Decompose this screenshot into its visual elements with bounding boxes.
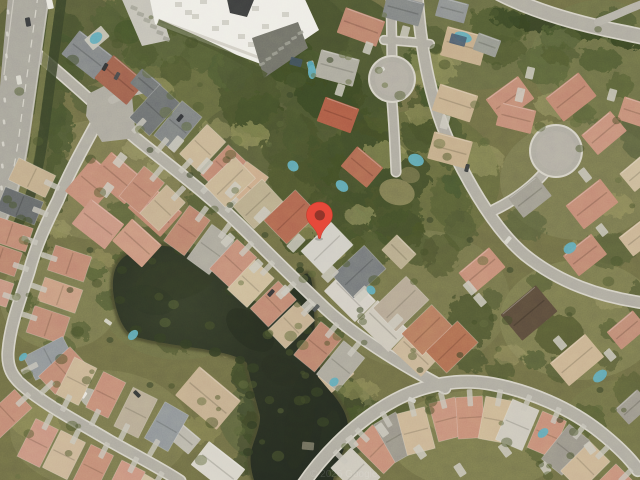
svg-text:© 2026 Google: © 2026 Google (310, 469, 378, 480)
